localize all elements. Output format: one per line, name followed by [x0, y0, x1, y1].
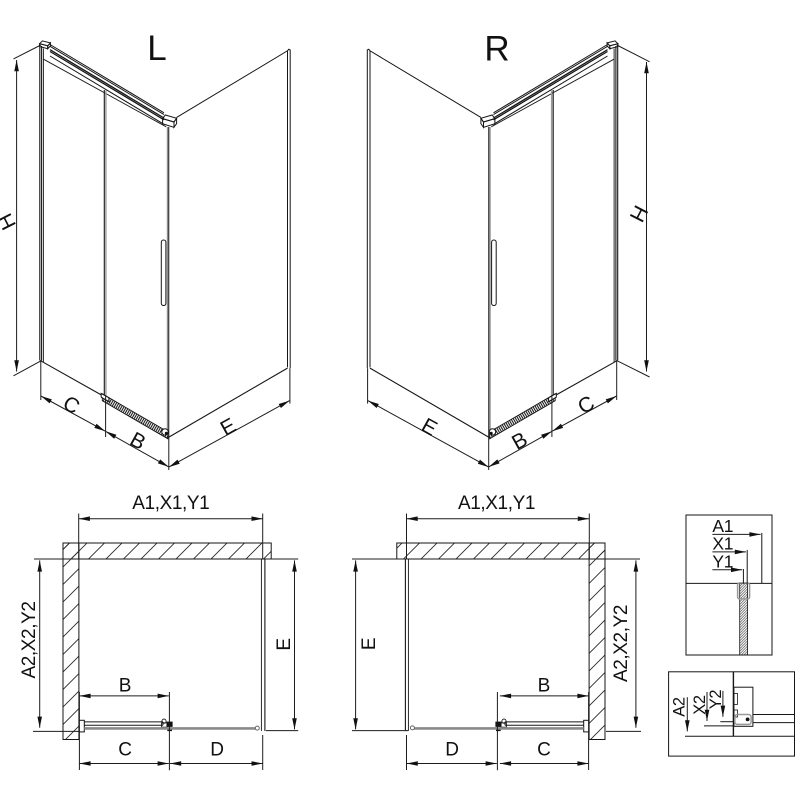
- svg-text:R: R: [484, 30, 509, 69]
- svg-text:L: L: [147, 29, 166, 68]
- svg-text:E: E: [359, 638, 380, 650]
- svg-text:Y2: Y2: [707, 690, 725, 710]
- svg-text:C: C: [118, 740, 131, 761]
- svg-text:A2,X2,Y2: A2,X2,Y2: [19, 601, 40, 678]
- svg-text:Y1: Y1: [712, 552, 733, 572]
- svg-text:D: D: [210, 740, 223, 761]
- svg-text:D: D: [445, 740, 458, 761]
- svg-text:A1,X1,Y1: A1,X1,Y1: [132, 493, 209, 514]
- svg-text:E: E: [274, 638, 295, 650]
- svg-text:C: C: [537, 740, 550, 761]
- svg-text:A2,X2,Y2: A2,X2,Y2: [611, 605, 632, 682]
- svg-text:B: B: [538, 676, 550, 697]
- svg-text:B: B: [119, 676, 131, 697]
- svg-text:A2: A2: [671, 697, 689, 717]
- svg-text:A1,X1,Y1: A1,X1,Y1: [458, 493, 535, 514]
